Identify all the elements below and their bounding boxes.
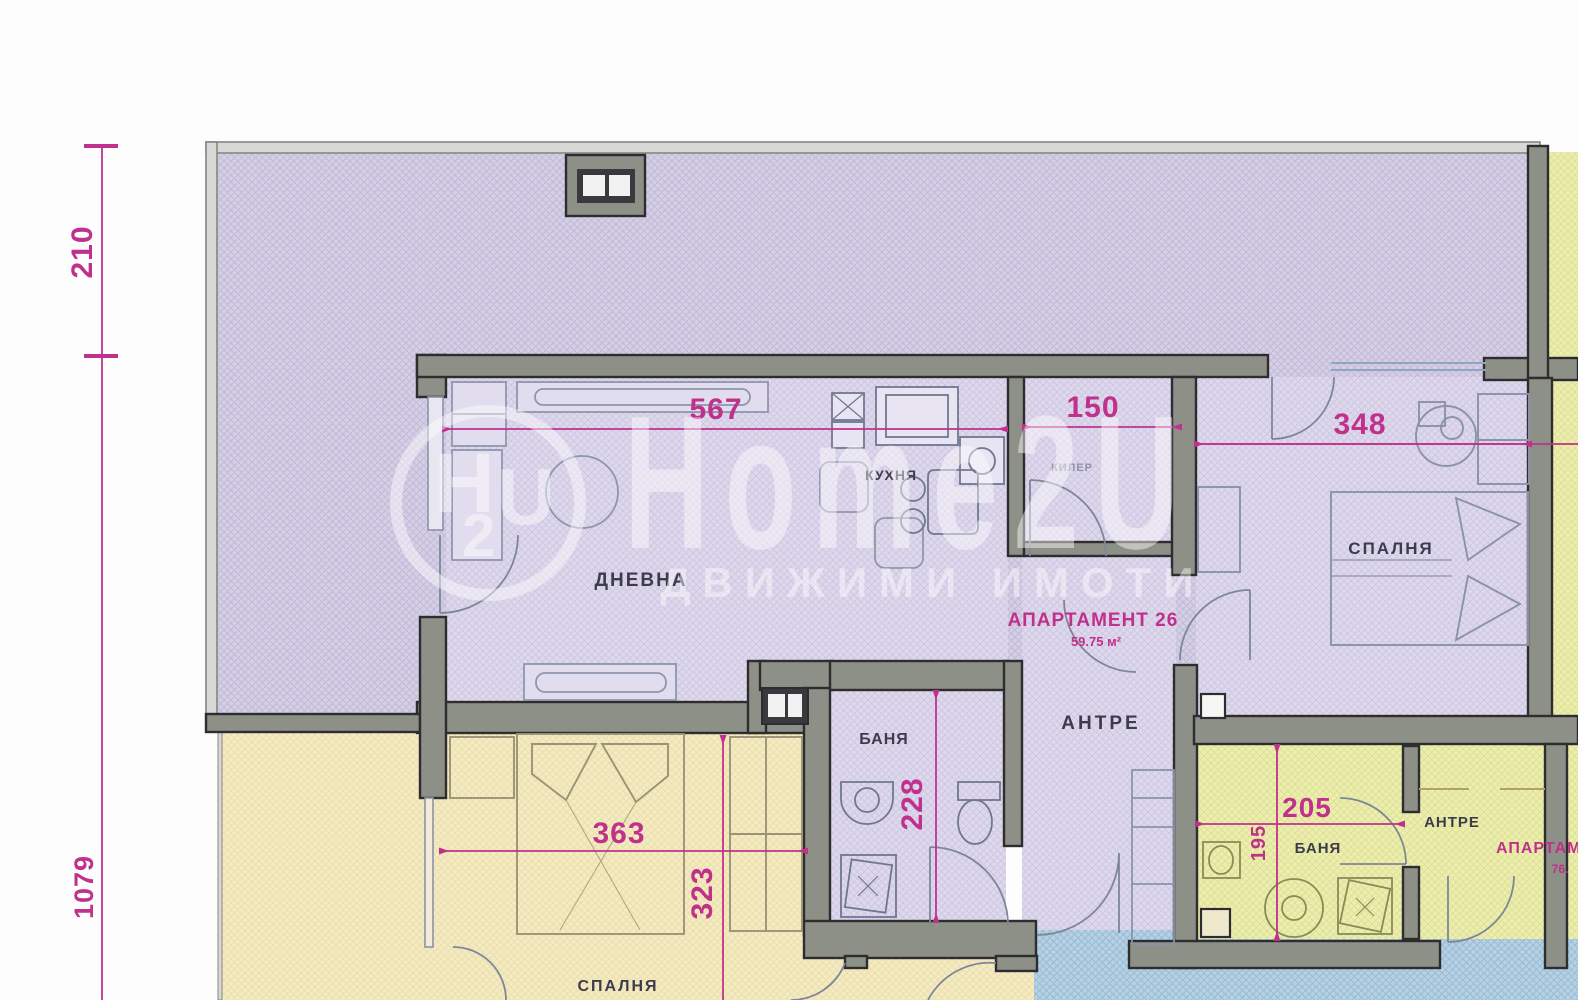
svg-text:АПАРТАМЕНТ 26: АПАРТАМЕНТ 26 (1008, 610, 1179, 631)
svg-text:АНТРЕ: АНТРЕ (1061, 713, 1140, 734)
svg-text:АНТРЕ: АНТРЕ (1424, 814, 1480, 831)
svg-text:76.: 76. (1552, 862, 1569, 876)
svg-text:363: 363 (592, 817, 645, 850)
svg-text:БАНЯ: БАНЯ (859, 731, 909, 748)
svg-text:59.75 м²: 59.75 м² (1071, 634, 1122, 649)
svg-text:БАНЯ: БАНЯ (1295, 840, 1342, 857)
svg-text:Home2U: Home2U (624, 377, 1195, 589)
svg-text:210: 210 (66, 225, 99, 278)
svg-text:2: 2 (462, 502, 495, 569)
svg-text:АПАРТАМЕН: АПАРТАМЕН (1496, 840, 1578, 857)
svg-text:348: 348 (1333, 408, 1386, 441)
svg-text:228: 228 (896, 777, 929, 830)
svg-text:СПАЛНЯ: СПАЛНЯ (1348, 539, 1433, 558)
svg-text:205: 205 (1282, 792, 1332, 823)
svg-text:ДВИЖИМИ ИМОТИ: ДВИЖИМИ ИМОТИ (660, 559, 1205, 606)
svg-text:1079: 1079 (69, 855, 99, 919)
svg-text:323: 323 (686, 866, 719, 919)
svg-text:195: 195 (1248, 825, 1270, 861)
svg-text:СПАЛНЯ: СПАЛНЯ (577, 978, 658, 995)
svg-text:U: U (497, 452, 555, 541)
